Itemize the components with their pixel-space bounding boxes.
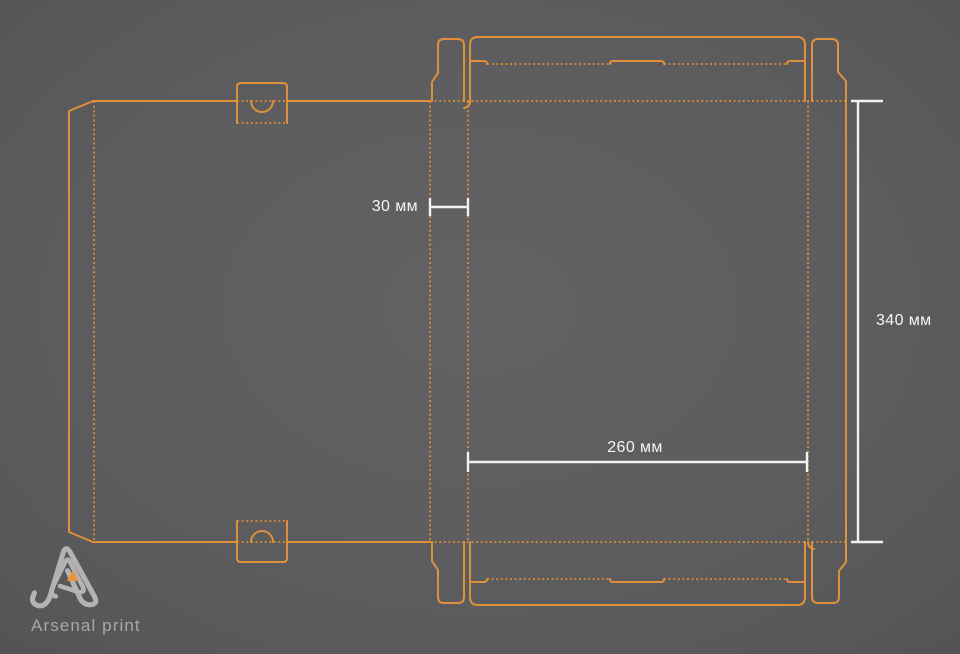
dimension-260mm-label: 260 мм bbox=[570, 439, 700, 457]
arsenal-print-logo-icon bbox=[28, 541, 114, 609]
top-lock-tab bbox=[237, 83, 287, 123]
top-right-dust-flap bbox=[812, 39, 846, 101]
cut-lines bbox=[69, 37, 846, 605]
bottom-left-dust-flap bbox=[432, 542, 464, 603]
bottom-right-dust-flap bbox=[812, 542, 846, 603]
dieline-canvas: 30 мм 340 мм 260 мм Arsenal print bbox=[0, 0, 960, 654]
top-left-dust-flap bbox=[432, 39, 464, 101]
relief-cuts bbox=[464, 101, 814, 549]
dimension-30mm-label: 30 мм bbox=[330, 198, 418, 216]
dimension-lines bbox=[430, 101, 883, 542]
top-tab-notch bbox=[251, 101, 273, 112]
logo-wordmark: Arsenal print bbox=[31, 616, 148, 636]
bottom-tab-notch bbox=[251, 531, 273, 542]
top-tuck-flap bbox=[470, 37, 805, 101]
bottom-tuck-flap bbox=[470, 542, 805, 605]
arsenal-print-logo: Arsenal print bbox=[28, 541, 148, 636]
back-panel-outline bbox=[69, 101, 430, 542]
dimension-340mm-label: 340 мм bbox=[876, 312, 932, 330]
dimension-30mm-line bbox=[430, 198, 468, 216]
fold-lines bbox=[94, 64, 846, 579]
